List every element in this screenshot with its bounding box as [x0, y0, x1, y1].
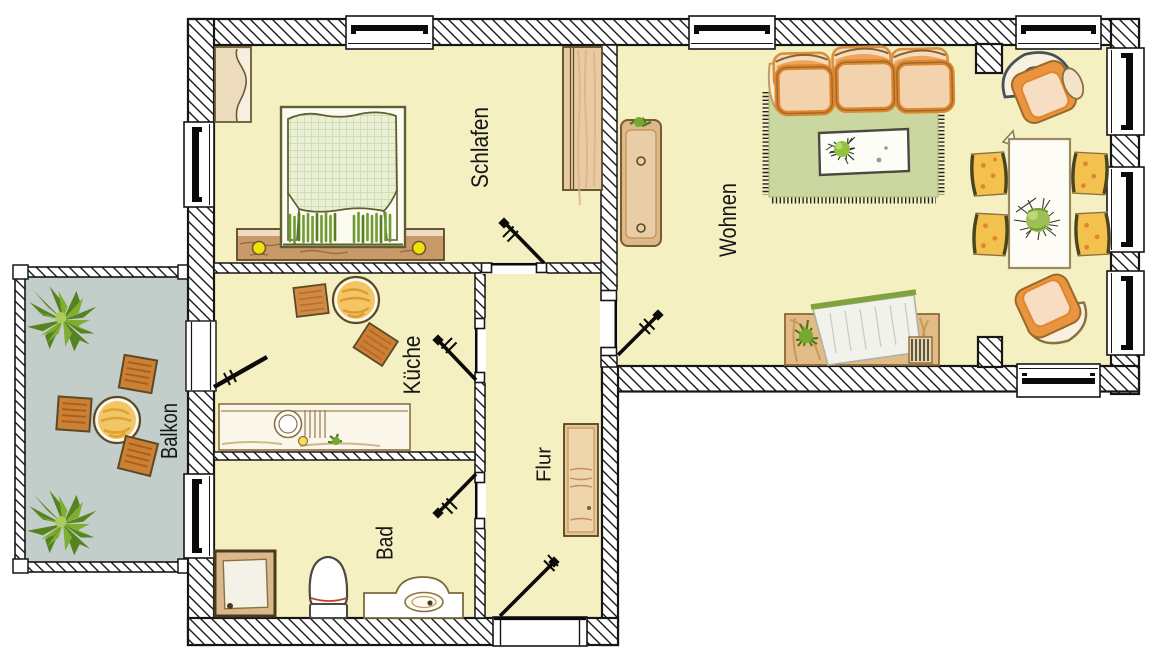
svg-text:Balkon: Balkon [156, 403, 182, 459]
svg-text:Flur: Flur [534, 447, 556, 482]
svg-text:Schlafen: Schlafen [467, 107, 494, 188]
svg-text:Wohnen: Wohnen [715, 183, 742, 257]
svg-text:Küche: Küche [399, 336, 426, 395]
svg-text:Bad: Bad [372, 526, 398, 560]
